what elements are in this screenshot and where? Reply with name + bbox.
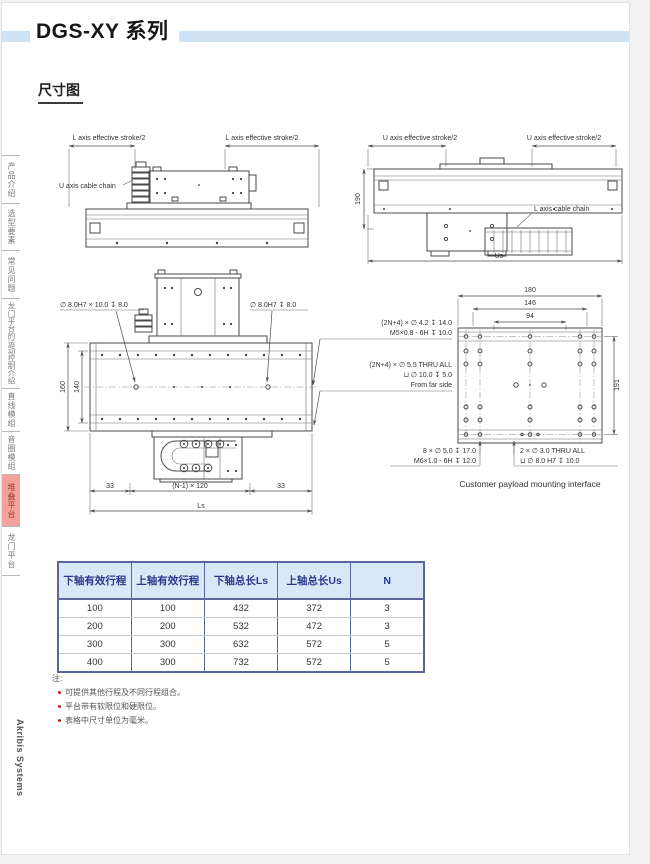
hole-callouts: ∅ 8.0H7 × 10.0 ↧ 8.0 ∅ 8.0H7 ↧ 8.0 xyxy=(60,302,308,382)
note-text: 平台带有软限位和硬限位。 xyxy=(65,701,161,712)
cell: 100 xyxy=(131,599,204,618)
dim-140: 140 xyxy=(74,381,81,393)
header-accent-bar-left xyxy=(2,31,30,42)
cell: 3 xyxy=(351,599,424,618)
col-header-n: N xyxy=(351,562,424,599)
payload-caption: Customer payload mounting interface xyxy=(459,479,601,489)
cell: 300 xyxy=(58,636,131,654)
cable-chain-label: U axis cable chain xyxy=(59,183,116,190)
note-item: 可提供其他行程及不同行程组合。 xyxy=(58,687,185,698)
sidebar-tab-gantry-platform[interactable]: 龙门平台 xyxy=(2,527,20,576)
sidebar-tab-voice-coil-module[interactable]: 音圈模组 xyxy=(2,432,20,475)
dim-ls: Ls xyxy=(197,503,205,510)
cell: 5 xyxy=(351,636,424,654)
dim-us: Us xyxy=(495,253,504,260)
dim-160: 160 xyxy=(60,381,67,393)
bullet-icon xyxy=(58,719,61,722)
dim-33-right: 33 xyxy=(277,483,285,490)
cell: 100 xyxy=(58,599,131,618)
stage-geometry xyxy=(86,167,308,247)
cell: 200 xyxy=(131,618,204,636)
thread-note-line2: M6×1.0 - 6H ↧ 12.0 xyxy=(414,458,476,465)
page-title: DGS-XY 系列 xyxy=(36,15,168,45)
table-row: 300 300 632 572 5 xyxy=(58,636,424,654)
col-header-upper-stroke: 上轴有效行程 xyxy=(131,562,204,599)
dim-label: L axis effective stroke/2 xyxy=(73,135,146,142)
us-dimension: Us xyxy=(368,215,622,264)
note-item: 表格中尺寸单位为毫米。 xyxy=(58,715,185,726)
bottom-dimensions: 33 (N-1) × 120 33 Ls xyxy=(90,433,312,515)
sidebar-tab-faq[interactable]: 常见问题 xyxy=(2,251,20,299)
sidebar-tab-product-intro[interactable]: 产品介绍 xyxy=(2,156,20,204)
cable-chain-label: L axis cable chain xyxy=(534,206,589,213)
bullet-icon xyxy=(58,691,61,694)
cell: 572 xyxy=(278,636,351,654)
table-row: 100 100 432 372 3 xyxy=(58,599,424,618)
stroke-length-table: 下轴有效行程 上轴有效行程 下轴总长Ls 上轴总长Us N 100 100 43… xyxy=(57,561,425,673)
dim-94: 94 xyxy=(526,313,534,320)
header-accent-bar-right xyxy=(179,31,629,42)
dowel-note-line1: 2 × ∅ 3.0 THRU ALL xyxy=(520,448,585,455)
upper-carriage xyxy=(135,270,267,343)
cell: 472 xyxy=(278,618,351,636)
mounting-plate xyxy=(458,328,602,443)
dim-pitch: (N-1) × 120 xyxy=(172,483,208,490)
thread-note-line1: 8 × ∅ 5.0 ↧ 17.0 xyxy=(423,448,476,455)
top-dimensions: 180 146 94 xyxy=(458,287,602,330)
sidebar-tab-linear-module[interactable]: 直线模组 xyxy=(2,389,20,432)
notes-block: 注: 可提供其他行程及不同行程组合。 平台带有软限位和硬限位。 表格中尺寸单位为… xyxy=(52,673,185,726)
cell: 532 xyxy=(204,618,277,636)
cell: 200 xyxy=(58,618,131,636)
left-dimensions: 160 140 xyxy=(60,343,88,431)
note-text: 可提供其他行程及不同行程组合。 xyxy=(65,687,185,698)
lower-carriage-and-chain xyxy=(152,431,272,482)
dim-180: 180 xyxy=(524,287,536,294)
cell: 372 xyxy=(278,599,351,618)
right-dimension: 191 xyxy=(604,337,621,435)
hole-label-left: ∅ 8.0H7 × 10.0 ↧ 8.0 xyxy=(60,302,128,309)
table-row: 200 200 532 472 3 xyxy=(58,618,424,636)
note-text: 表格中尺寸单位为毫米。 xyxy=(65,715,153,726)
cell: 5 xyxy=(351,654,424,673)
dim-label: L axis effective stroke/2 xyxy=(226,135,299,142)
cell: 572 xyxy=(278,654,351,673)
dowel-note-line2: ⊔ ∅ 8.0 H7 ↧ 10.0 xyxy=(520,458,580,465)
section-title: 尺寸图 xyxy=(38,80,83,104)
cell: 400 xyxy=(58,654,131,673)
dim-label: U axis effective stroke/2 xyxy=(527,135,601,142)
col-header-us: 上轴总长Us xyxy=(278,562,351,599)
sidebar-tab-gantry-motion-control[interactable]: 龙门平台的运动控制介绍 xyxy=(2,299,20,389)
sidebar-tab-stacked-platform[interactable]: 堆叠平台 xyxy=(2,475,20,527)
col-header-ls: 下轴总长Ls xyxy=(204,562,277,599)
cell: 632 xyxy=(204,636,277,654)
catalog-page: DGS-XY 系列 尺寸图 产品介绍 选型要素 常见问题 龙门平台的运动控制介绍… xyxy=(1,2,630,855)
bullet-icon xyxy=(58,705,61,708)
cell: 732 xyxy=(204,654,277,673)
cell: 432 xyxy=(204,599,277,618)
notes-label: 注: xyxy=(52,673,185,684)
cell: 3 xyxy=(351,618,424,636)
dim-190: 190 xyxy=(355,193,362,205)
main-body xyxy=(84,343,318,431)
cell: 300 xyxy=(131,636,204,654)
drawing-payload-interface: 180 146 94 xyxy=(382,281,642,499)
cell: 300 xyxy=(131,654,204,673)
drawing-l-axis-side-view: L axis effective stroke/2 L axis effecti… xyxy=(57,131,349,263)
u-axis-cable-chain: U axis cable chain xyxy=(59,162,150,202)
drawing-u-axis-top-view: U axis effective stroke/2 U axis effecti… xyxy=(354,131,642,271)
dim-146: 146 xyxy=(524,300,536,307)
bottom-callouts: 8 × ∅ 5.0 ↧ 17.0 M6×1.0 - 6H ↧ 12.0 2 × … xyxy=(390,441,618,489)
col-header-lower-stroke: 下轴有效行程 xyxy=(58,562,131,599)
hole-label-right: ∅ 8.0H7 ↧ 8.0 xyxy=(250,302,296,309)
dim-label: U axis effective stroke/2 xyxy=(383,135,457,142)
sidebar-tab-selection[interactable]: 选型要素 xyxy=(2,204,20,251)
dimension-lines: U axis effective stroke/2 U axis effecti… xyxy=(355,135,616,229)
sidebar: 产品介绍 选型要素 常见问题 龙门平台的运动控制介绍 直线模组 音圈模组 堆叠平… xyxy=(2,155,20,576)
brand-vertical-text: Akribis Systems xyxy=(15,719,25,799)
note-item: 平台带有软限位和硬限位。 xyxy=(58,701,185,712)
dim-191: 191 xyxy=(614,379,621,391)
table-row: 400 300 732 572 5 xyxy=(58,654,424,673)
dim-33-left: 33 xyxy=(106,483,114,490)
